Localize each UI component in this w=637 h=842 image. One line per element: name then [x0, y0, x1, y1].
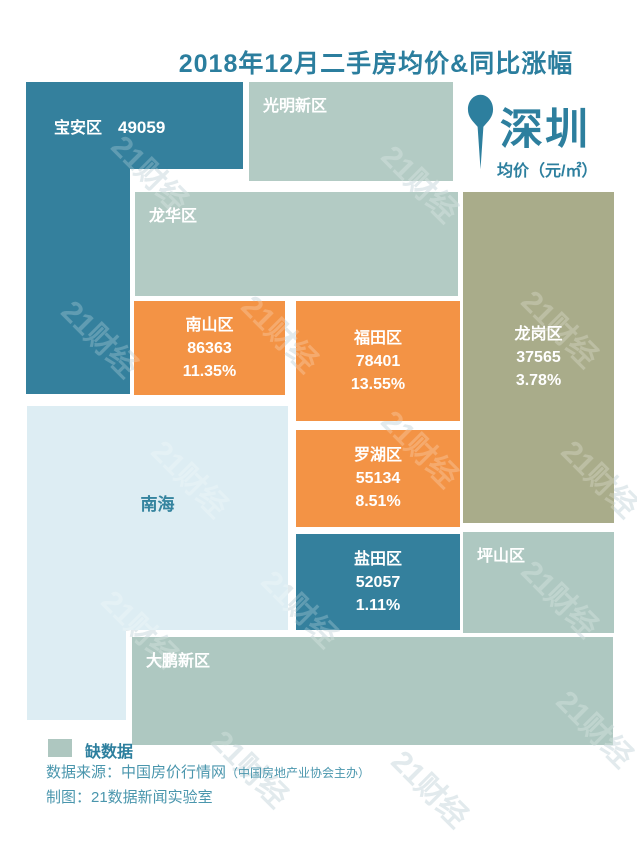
credit-line: 制图：21数据新闻实验室 — [46, 786, 213, 807]
legend-no-data-swatch — [48, 739, 72, 757]
district-name: 大鹏新区 — [146, 647, 210, 671]
district-block-pingshan: 坪山区 — [463, 532, 614, 633]
data-source-text: 数据来源：中国房价行情网 — [46, 764, 226, 781]
district-change: 11.35% — [183, 360, 236, 383]
district-name: 福田区 — [354, 327, 402, 350]
district-price: 37565 — [516, 346, 561, 369]
district-label: 宝安区49059 — [54, 114, 165, 138]
district-change: 1.11% — [356, 594, 400, 617]
district-price: 86363 — [187, 337, 232, 360]
district-block-nanshan: 南山区 86363 11.35% — [134, 301, 285, 395]
district-name: 光明新区 — [263, 92, 327, 116]
sea-area-name: 南海 — [27, 490, 288, 515]
page-title: 2018年12月二手房均价&同比涨幅 — [120, 44, 632, 80]
city-name: 深圳 — [500, 95, 590, 157]
district-price: 52057 — [356, 571, 401, 594]
district-price: 55134 — [356, 467, 401, 490]
district-price: 78401 — [356, 350, 401, 373]
district-change: 13.55% — [351, 373, 405, 396]
district-block-futian: 福田区 78401 13.55% — [296, 301, 460, 421]
district-label: 福田区 78401 13.55% — [296, 301, 460, 421]
district-label: 龙岗区 37565 3.78% — [463, 192, 614, 523]
district-price: 49059 — [118, 118, 165, 137]
district-name: 盐田区 — [354, 548, 402, 571]
watermark-text: 21财经 — [383, 738, 480, 835]
district-block-luohu: 罗湖区 55134 8.51% — [296, 430, 460, 527]
district-change: 3.78% — [516, 369, 561, 392]
district-label: 南山区 86363 11.35% — [134, 301, 285, 395]
district-change: 8.51% — [355, 490, 400, 513]
district-block-guangming: 光明新区 — [249, 82, 453, 181]
district-name: 罗湖区 — [354, 444, 402, 467]
district-name: 宝安区 — [54, 120, 102, 137]
district-block-longgang: 龙岗区 37565 3.78% — [463, 192, 614, 523]
district-block-longhua: 龙华区 — [135, 192, 458, 296]
district-block-dapeng: 大鹏新区 — [132, 637, 613, 745]
district-label: 罗湖区 55134 8.51% — [296, 430, 460, 527]
district-name: 南山区 — [185, 314, 233, 337]
watermark-text: 21财经 — [383, 738, 480, 835]
location-pin-icon — [466, 93, 495, 172]
data-source-line: 数据来源：中国房价行情网（中国房地产业协会主办） — [46, 761, 370, 782]
district-name: 龙岗区 — [514, 323, 562, 346]
district-name: 坪山区 — [477, 542, 525, 566]
district-block-yantian: 盐田区 52057 1.11% — [296, 534, 460, 630]
legend-no-data-label: 缺数据 — [85, 738, 133, 762]
infographic-canvas: 21财经21财经21财经21财经21财经21财经21财经21财经21财经21财经… — [0, 0, 637, 842]
price-unit-label: 均价（元/㎡） — [497, 157, 597, 181]
district-label: 盐田区 52057 1.11% — [296, 534, 460, 630]
district-name: 龙华区 — [149, 202, 197, 226]
data-source-organizer: （中国房地产业协会主办） — [226, 766, 370, 780]
